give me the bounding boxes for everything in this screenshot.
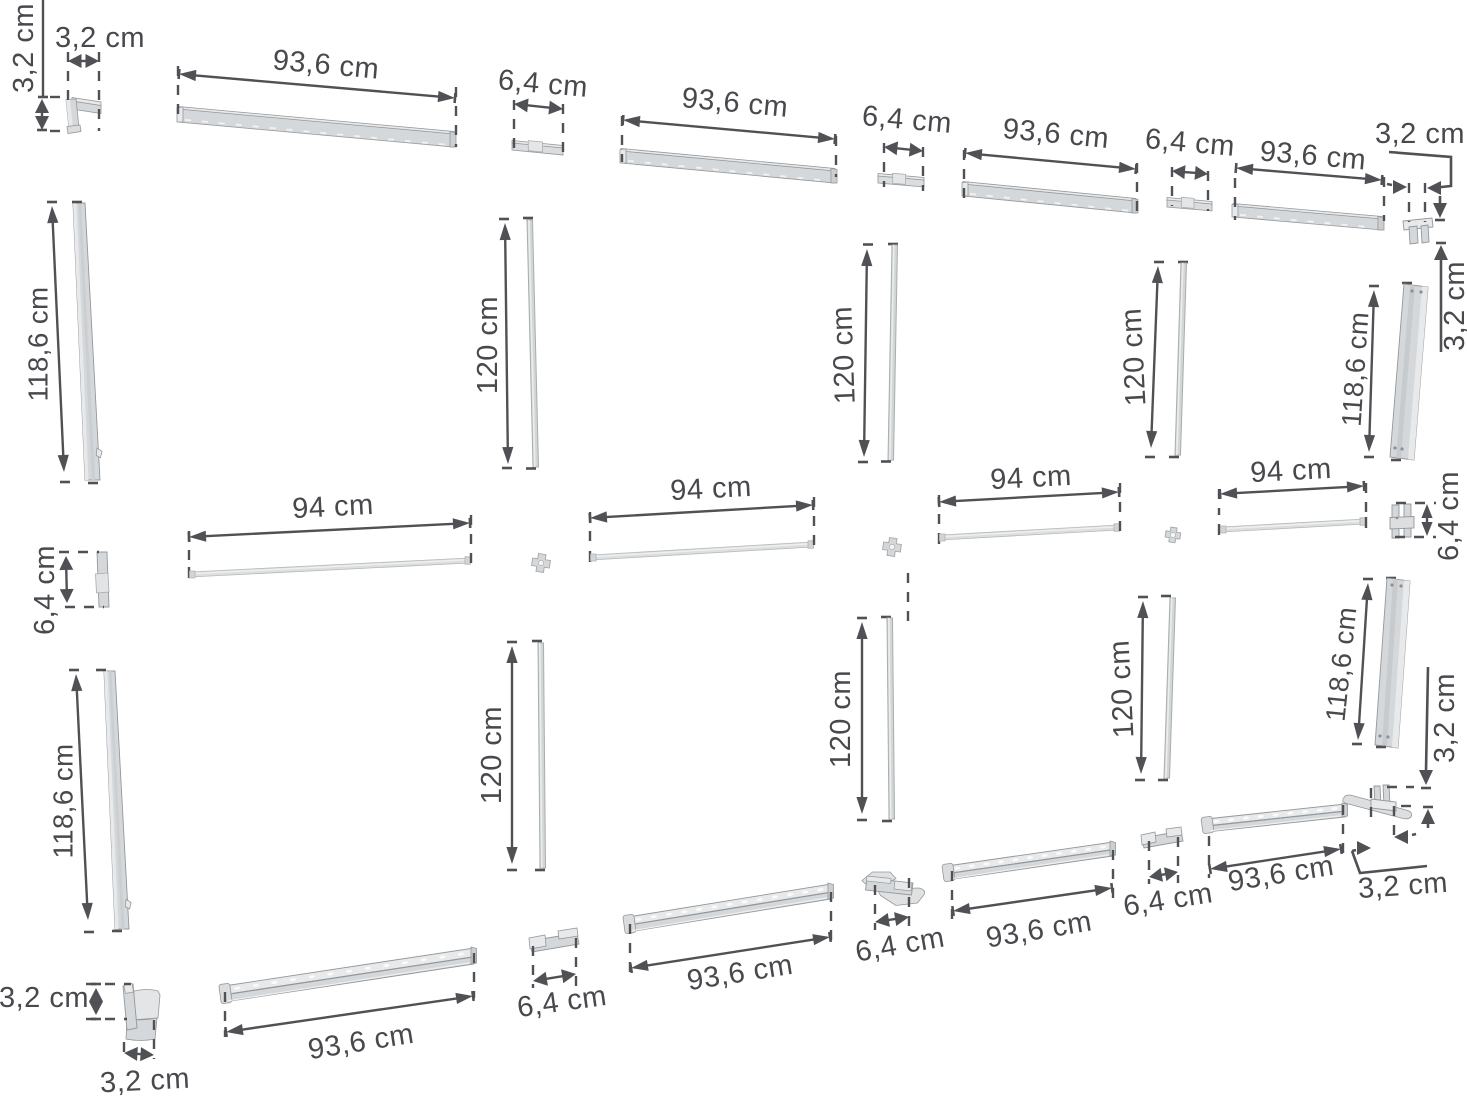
svg-text:94 cm: 94 cm xyxy=(989,460,1072,496)
svg-text:120 cm: 120 cm xyxy=(1103,639,1140,739)
svg-text:120 cm: 120 cm xyxy=(472,296,504,394)
svg-text:3,2 cm: 3,2 cm xyxy=(8,3,40,93)
svg-text:3,2 cm: 3,2 cm xyxy=(0,982,89,1014)
svg-text:3,2 cm: 3,2 cm xyxy=(55,22,145,54)
svg-text:120 cm: 120 cm xyxy=(825,670,857,768)
svg-text:94 cm: 94 cm xyxy=(1249,453,1332,489)
svg-text:118,6 cm: 118,6 cm xyxy=(23,286,54,401)
svg-text:3,2 cm: 3,2 cm xyxy=(1429,673,1461,763)
svg-text:118,6 cm: 118,6 cm xyxy=(48,743,79,858)
svg-text:120 cm: 120 cm xyxy=(1115,307,1152,407)
svg-text:3,2 cm: 3,2 cm xyxy=(1439,261,1467,351)
svg-text:94 cm: 94 cm xyxy=(669,471,752,507)
svg-text:3,2 cm: 3,2 cm xyxy=(99,1063,191,1096)
svg-text:6,4 cm: 6,4 cm xyxy=(29,545,61,635)
svg-text:3,2 cm: 3,2 cm xyxy=(1375,118,1465,150)
svg-text:3,2 cm: 3,2 cm xyxy=(1357,867,1449,905)
svg-text:120 cm: 120 cm xyxy=(476,706,508,804)
svg-text:120 cm: 120 cm xyxy=(826,305,861,404)
svg-text:94 cm: 94 cm xyxy=(291,489,374,525)
svg-text:6,4 cm: 6,4 cm xyxy=(1433,471,1465,561)
